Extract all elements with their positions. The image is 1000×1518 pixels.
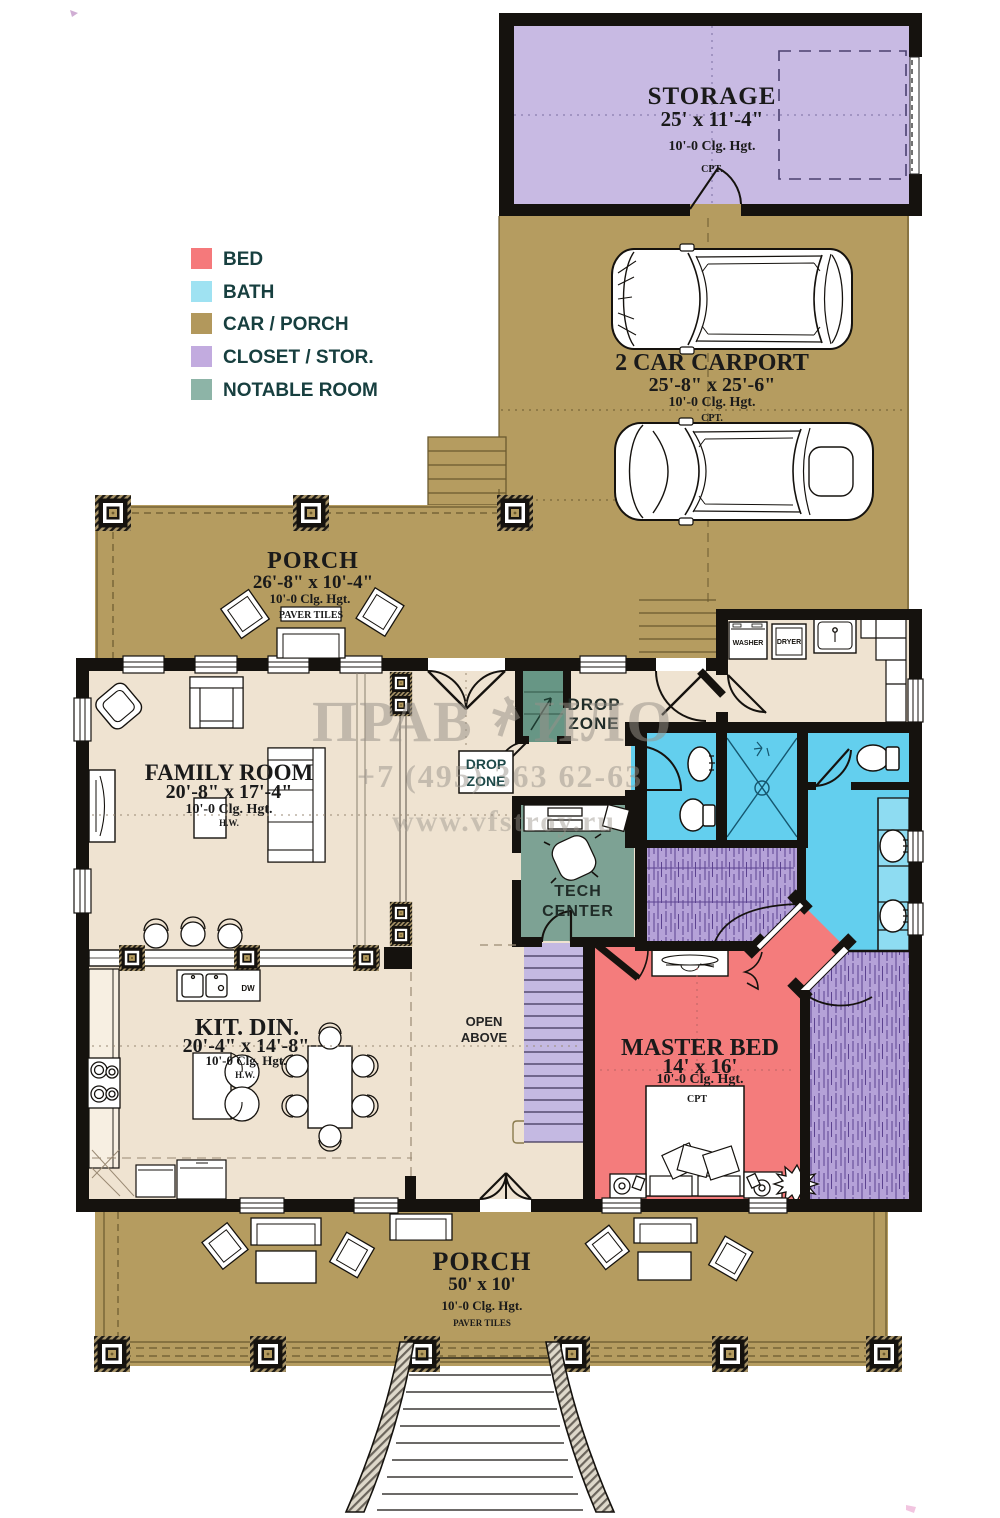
svg-text:WASHER: WASHER [733, 640, 764, 647]
svg-text:PORCH: PORCH [433, 1247, 532, 1276]
svg-text:BATH: BATH [223, 282, 274, 303]
svg-text:www.vfstroy.ru: www.vfstroy.ru [392, 805, 616, 838]
svg-text:10'-0 Clg. Hgt.: 10'-0 Clg. Hgt. [442, 1298, 523, 1313]
svg-text:H.W.: H.W. [235, 1070, 255, 1080]
svg-text:STORAGE: STORAGE [648, 83, 777, 110]
svg-text:10'-0 Clg. Hgt.: 10'-0 Clg. Hgt. [668, 139, 755, 154]
svg-text:PAVER TILES: PAVER TILES [279, 610, 344, 621]
svg-text:ABOVE: ABOVE [461, 1030, 508, 1045]
svg-text:PAVER TILES: PAVER TILES [453, 1318, 511, 1328]
svg-text:H.W.: H.W. [219, 818, 239, 828]
svg-text:DRYER: DRYER [777, 639, 801, 646]
svg-text:PORCH: PORCH [267, 548, 359, 574]
svg-text:CPT: CPT [687, 1094, 707, 1105]
svg-text:50' x 10': 50' x 10' [448, 1274, 516, 1295]
svg-text:+7 (495) 363 62-63: +7 (495) 363 62-63 [357, 758, 643, 794]
svg-text:CPT.: CPT. [701, 164, 723, 175]
svg-text:TECH: TECH [554, 883, 602, 900]
svg-text:DW: DW [241, 984, 255, 993]
svg-text:CAR / PORCH: CAR / PORCH [223, 314, 349, 335]
svg-text:10'-0 Clg. Hgt.: 10'-0 Clg. Hgt. [668, 395, 755, 410]
svg-text:25'-8" x 25'-6": 25'-8" x 25'-6" [649, 374, 776, 396]
svg-text:ИЛО: ИЛО [534, 689, 673, 754]
svg-text:ПРАВ: ПРАВ [312, 689, 474, 754]
svg-text:CLOSET / STOR.: CLOSET / STOR. [223, 347, 374, 368]
svg-text:2 CAR CARPORT: 2 CAR CARPORT [615, 350, 809, 376]
svg-text:OPEN: OPEN [466, 1014, 503, 1029]
svg-text:10'-0 Clg. Hgt.: 10'-0 Clg. Hgt. [270, 591, 351, 606]
svg-text:25' x 11'-4": 25' x 11'-4" [661, 107, 764, 131]
svg-text:26'-8" x 10'-4": 26'-8" x 10'-4" [253, 572, 373, 593]
svg-text:BED: BED [223, 249, 263, 270]
svg-text:10'-0 Clg. Hgt.: 10'-0 Clg. Hgt. [206, 1053, 287, 1068]
svg-text:20'-8" x 17'-4": 20'-8" x 17'-4" [166, 781, 293, 803]
svg-text:NOTABLE ROOM: NOTABLE ROOM [223, 380, 378, 401]
svg-text:CENTER: CENTER [542, 903, 614, 920]
svg-text:10'-0 Clg. Hgt.: 10'-0 Clg. Hgt. [656, 1072, 743, 1087]
